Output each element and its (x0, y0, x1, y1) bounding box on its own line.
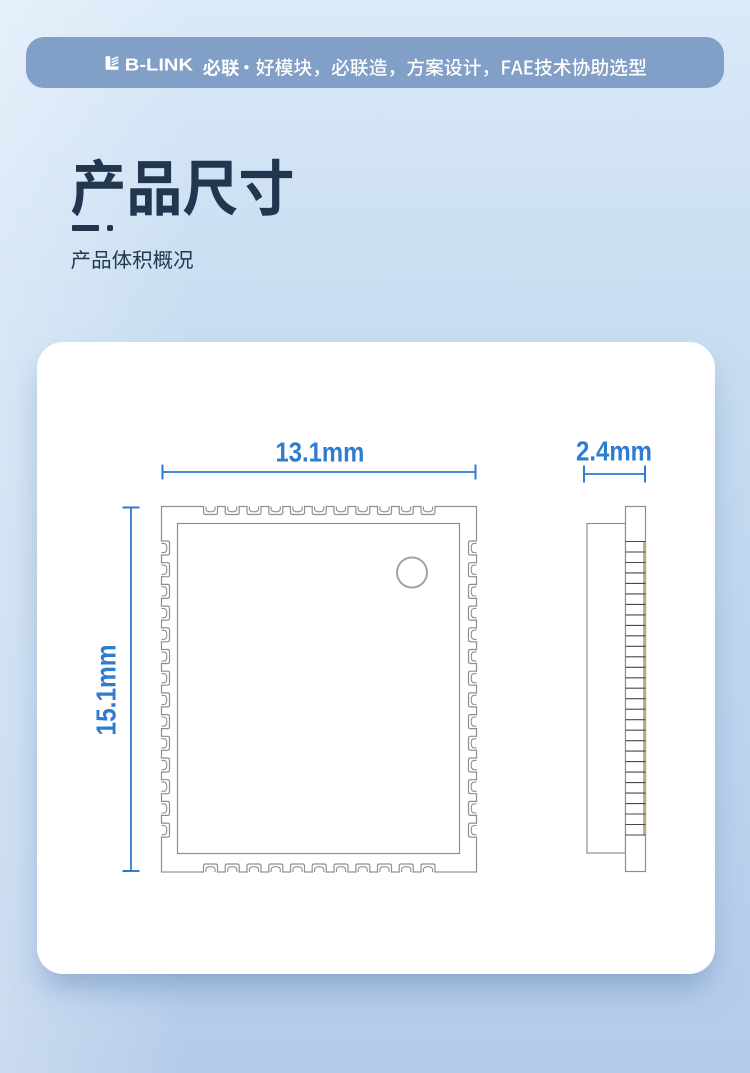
svg-text:2.4mm: 2.4mm (576, 436, 652, 467)
svg-text:15.1mm: 15.1mm (91, 645, 122, 736)
svg-text:13.1mm: 13.1mm (276, 437, 365, 468)
svg-text:B-LINK: B-LINK (125, 54, 194, 74)
